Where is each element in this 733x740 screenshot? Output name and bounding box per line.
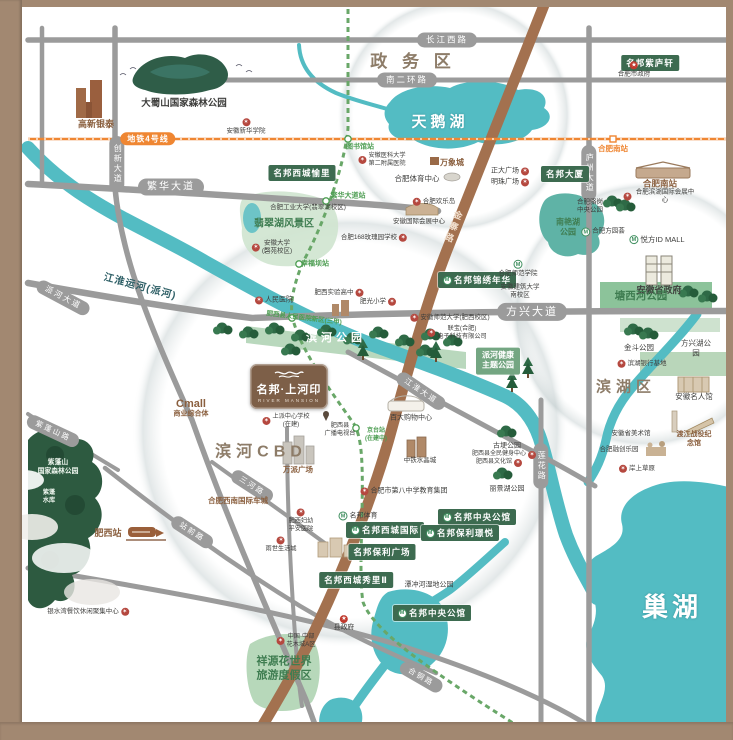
poi-feixi-tv-station: 肥西县 广播电视台 <box>325 422 356 438</box>
station-xingfuba: 幸福坝站 <box>301 259 329 268</box>
logo-waves-icon <box>274 370 304 379</box>
poi-yuefang-id-mall-text: 悦方ID MALL <box>640 235 684 245</box>
project-logo: 名邦·上河印 RIVER MANSION <box>250 364 328 409</box>
poi-marker-icon: ✶ <box>388 298 396 306</box>
poi-mingbang-sports: M名邦体育 <box>339 511 378 520</box>
park-binhe-label-text: 滨河公园 <box>306 331 366 345</box>
river-jianghuai-label-text: 江淮运河(派河) <box>102 271 177 303</box>
government-icon: ★ <box>340 615 348 623</box>
metro-station-icon: M <box>581 228 590 237</box>
poi-gaoxin-yintai: 高新银泰 <box>78 119 114 131</box>
poi-feixi-shiyan-school: 肥西实验高中✶ <box>315 289 364 297</box>
poi-dujiang-memorial: 渡江战役纪念馆 <box>675 430 714 448</box>
poi-huamucheng: ✶中国·中部 花木城A区 <box>277 633 316 649</box>
park-gugeng: 古埂公园 <box>493 441 521 450</box>
road-label-zhanqian-rd-text: 站前路 <box>177 520 206 544</box>
road-label-chuangxin-ave: 创新大道 <box>109 136 124 192</box>
park-xiangyuan-flower-world-text: 祥源花世界 旅游度假区 <box>257 655 312 684</box>
project-mingbang-zhongyang-gongguan-1: M名邦中央公馆 <box>438 509 516 525</box>
poi-shangpai-school: ✶上派中心学校 (在建) <box>262 413 309 429</box>
map-labels-layer: 长江西路南二环路繁华大道创新大道派河大道方兴大道庐州大道莲花路江淮大道站前路紫蓬… <box>0 0 733 740</box>
poi-marker-icon: ✶ <box>361 487 369 495</box>
park-binhe-label: 滨河公园 <box>306 331 366 345</box>
project-mingbang-zhongyang-gongguan-1-text: 名邦中央公馆 <box>454 511 511 522</box>
park-gugeng-text: 古埂公园 <box>493 441 521 450</box>
poi-marker-icon: ✶ <box>262 417 270 425</box>
station-hefeinan-metro-text: 合肥南站 <box>598 144 628 154</box>
park-zipengshan: 紫蓬山 国家森林公园 <box>38 459 79 477</box>
poi-intl-expo-center: 安徽国际会展中心 <box>393 218 445 226</box>
road-label-changjiang-west-rd-text: 长江西路 <box>426 34 468 45</box>
project-mingbang-zhiluxuan-text: 名邦紫庐轩 <box>626 57 674 68</box>
road-label-chuangxin-ave-text: 创新大道 <box>112 144 122 184</box>
poi-marker-icon: ✶ <box>252 244 260 252</box>
poi-huanledao: ✶合肥欢乐岛 <box>413 198 456 206</box>
road-label-jianghuai-ave: 江淮大道 <box>394 370 448 413</box>
poi-lianbao: ✶联宝(合肥) 电子科技有限公司 <box>427 325 487 341</box>
poi-marker-icon: ✶ <box>514 459 522 467</box>
poi-zhongtie-crystal-city: 中铁水晶城 <box>404 457 437 465</box>
project-mingbang-zhiluxuan: 名邦紫庐轩 <box>621 55 679 71</box>
poi-anhui-xinhua: ✶安徽新华学院 <box>227 118 266 135</box>
project-mingbang-dasha-text: 名邦大厦 <box>546 168 584 179</box>
map-frame-bottom <box>0 722 733 740</box>
poi-cmall-text: Cmall <box>176 397 206 411</box>
poi-no8-middle-school-text: 合肥市第八中学教育集团 <box>371 486 448 495</box>
road-label-luzhou-ave: 庐州大道 <box>581 145 596 201</box>
road-label-zipengshan-rd-text: 紫蓬山路 <box>34 419 73 444</box>
poi-rongchuang-park: 合肥融创乐园 <box>600 446 639 454</box>
poi-county-gov: ★县政府 <box>334 615 354 633</box>
poi-anhui-mingren-hall: 安徽名人馆 <box>675 392 713 402</box>
road-label-lianhua-rd: 莲花路 <box>533 443 548 489</box>
poi-feixi-culture-hall-text: 肥西县文化馆 <box>476 459 512 467</box>
poi-cmall-sub-text: 商业综合体 <box>174 409 209 418</box>
poi-fangyuanhui: M合肥方园荟 <box>581 228 625 237</box>
poi-marker-icon: ✶ <box>619 465 627 473</box>
poi-marker-icon: ✶ <box>413 198 421 206</box>
poi-feixi-railway-station: 肥西站 <box>94 528 121 540</box>
road-label-fanhua-ave: 繁华大道 <box>138 179 204 196</box>
poi-marker-icon: ✶ <box>399 234 407 242</box>
project-mingbang-xicheng-xiuli-text: 名邦西城秀里Ⅱ <box>324 574 388 585</box>
project-name-en: RIVER MANSION <box>258 398 320 403</box>
lake-chaohu-label-text: 巢湖 <box>642 591 702 625</box>
station-xingfuba-text: 幸福坝站 <box>301 259 329 268</box>
poi-wanxiangcheng: 万象城 <box>440 158 464 168</box>
project-mingbang-baoli-jingyue-text: 名邦保利璟悦 <box>437 527 494 538</box>
station-fanhua-ave-text: 繁华大道站 <box>331 191 366 200</box>
project-mingbang-xicheng-yuli: 名邦西城愉里 <box>268 165 335 181</box>
road-label-zipengshan-rd: 紫蓬山路 <box>25 413 82 449</box>
poi-southwest-auto-city-text: 合肥西南国际车城 <box>208 496 268 506</box>
poi-lianbao-text: 联宝(合肥) 电子科技有限公司 <box>437 325 487 341</box>
district-binhe-cbd-text: 滨河CBD <box>215 443 307 464</box>
location-map: 长江西路南二环路繁华大道创新大道派河大道方兴大道庐州大道莲花路江淮大道站前路紫蓬… <box>0 0 733 740</box>
poi-hfut-text: 合肥工业大学(翡翠湖校区) <box>270 204 346 212</box>
poi-anhui-normal-univ-text: 安徽师范大学(肥西校区) <box>420 314 489 322</box>
road-label-sanhe-rd-text: 三河路 <box>237 474 266 498</box>
poi-yushi-life-city: ✶雨世生活城 <box>266 536 297 553</box>
poi-shangpai-school-text: 上派中心学校 (在建) <box>272 413 309 429</box>
poi-168-school-text: 合肥168玫瑰园学校 <box>341 234 397 242</box>
district-binhu: 滨湖区 <box>596 377 656 397</box>
poi-dashushan-text: 大蜀山国家森林公园 <box>141 98 227 110</box>
poi-yushi-life-city-text: 雨世生活城 <box>266 545 297 553</box>
poi-hfut: 合肥工业大学(翡翠湖校区) <box>270 204 346 212</box>
poi-quanmin-fitness-center-text: 肥西县全民健身中心 <box>472 451 526 459</box>
project-mingbang-baoli-jingyue: M名邦保利璟悦 <box>421 525 499 541</box>
park-jindou-text: 金斗公园 <box>624 343 654 353</box>
poi-county-gov-text: 县政府 <box>334 624 354 633</box>
poi-cmall-sub: 商业综合体 <box>174 409 209 418</box>
park-paihe-health-text: 派河健康 主题公园 <box>482 351 514 372</box>
poi-anhui-art-museum-text: 安徽省美术馆 <box>612 430 651 438</box>
road-label-paihe-ave-text: 派河大道 <box>43 284 83 312</box>
park-fangxinghu: 方兴湖公园 <box>678 338 715 358</box>
park-zipengshan-text: 紫蓬山 国家森林公园 <box>38 459 79 477</box>
poi-marker-icon: ✶ <box>624 193 632 201</box>
metro-station-icon: M <box>629 236 638 245</box>
road-label-nanerhuan-rd-text: 南二环路 <box>386 74 428 85</box>
road-label-sanhe-rd: 三河路 <box>229 468 275 505</box>
poi-marker-icon: ✶ <box>521 167 529 175</box>
poi-feixi-shiyan-school-text: 肥西实验高中 <box>315 289 354 297</box>
project-mingbang-baoli-plaza: 名邦保利广场 <box>348 544 415 560</box>
poi-yuefang-id-mall: M悦方ID MALL <box>629 235 684 245</box>
poi-anhui-art-museum: 安徽省美术馆 <box>612 430 651 438</box>
poi-anyida-2nd-hospital-text: 安徽医科大学 第二附属医院 <box>368 152 405 168</box>
poi-quanmin-fitness-center: 肥西县全民健身中心✶ <box>472 451 536 459</box>
park-feicuihu-text: 翡翠湖风景区 <box>254 218 314 231</box>
water-zipeng-reservoir-text: 紫蓬 水库 <box>43 489 55 505</box>
metro-station-icon: M <box>398 608 407 617</box>
poi-gaoxin-yintai-text: 高新银泰 <box>78 119 114 131</box>
poi-marker-icon: ✶ <box>356 289 364 297</box>
poi-hefei-gov-text: 合肥市政府 <box>618 70 651 78</box>
poi-hefei-gov: ★合肥市政府 <box>618 61 651 78</box>
poi-southwest-auto-city: 合肥西南国际车城 <box>208 496 268 506</box>
poi-luogang-park-text: 合肥骆岗 中央公园 <box>577 199 603 216</box>
poi-marker-icon: ✶ <box>277 536 285 544</box>
project-mingbang-jinxiu-nianhua-text: 名邦锦绣年华 <box>454 274 511 285</box>
project-mingbang-xicheng-yuli-text: 名邦西城愉里 <box>273 167 330 178</box>
park-tanchonghe-wetland-text: 潭冲河湿地公园 <box>405 580 454 589</box>
project-mingbang-xicheng-xiuli: 名邦西城秀里Ⅱ <box>319 572 393 588</box>
poi-yinshuiwan-text: 银水湾餐饮休闲聚集中心 <box>47 608 119 616</box>
poi-wanpai-plaza: 万派广场 <box>283 465 313 475</box>
poi-anhui-mingren-hall-text: 安徽名人馆 <box>675 392 713 402</box>
metro-station-icon: M <box>351 525 360 534</box>
poi-hefei-normal-text: 合肥师范学院 <box>499 270 538 278</box>
park-nanyanhu-text: 南艳湖 公园 <box>556 218 580 239</box>
district-zhengwu: 政 务 区 <box>370 51 455 73</box>
metro-station-icon: M <box>443 512 452 521</box>
government-icon: ★ <box>630 61 638 69</box>
poi-anhui-jianzhu: 安徽建筑大学 南校区 <box>501 284 540 301</box>
lake-tianehu-label: 天鹅湖 <box>411 112 468 132</box>
poi-zhengda-plaza-text: 正大广场 <box>491 166 519 175</box>
road-label-luzhou-ave-text: 庐州大道 <box>584 153 594 193</box>
road-label-lianhua-rd-text: 莲花路 <box>536 451 546 481</box>
park-tangxihe-text: 塘西河公园 <box>615 290 668 304</box>
metro-station-icon: M <box>443 275 452 284</box>
poi-anhui-gov: 安徽省政府 <box>636 285 681 297</box>
poi-luogang-park: 合肥骆岗 中央公园 <box>577 199 603 216</box>
poi-zhengda-plaza: 正大广场✶ <box>491 166 529 175</box>
poi-feixi-culture-hall: 肥西县文化馆✶ <box>476 459 522 467</box>
poi-marker-icon: ✶ <box>618 360 626 368</box>
poi-feixi-fuyou-hospital: ✶肥西妇幼 平安医院 <box>289 508 314 533</box>
metro-station-icon: M <box>426 528 435 537</box>
poi-feiguang-primary: 肥光小学✶ <box>360 298 396 306</box>
poi-hefei-normal: M合肥师范学院 <box>499 260 538 278</box>
poi-huanledao-text: 合肥欢乐岛 <box>423 198 456 206</box>
station-feixi-hospital-text: 肥西县人民医院新区(三甲) <box>266 310 342 328</box>
poi-marker-icon: ✶ <box>297 508 305 516</box>
park-paihe-health: 派河健康 主题公园 <box>476 348 520 375</box>
poi-yinshuiwan: 银水湾餐饮休闲聚集中心✶ <box>47 608 129 616</box>
station-jingtai: 京台站 (在建中) <box>365 428 387 444</box>
poi-binhu-bank-base: ✶滨湖银行基地 <box>618 360 667 368</box>
poi-binhu-bank-base-text: 滨湖银行基地 <box>628 360 667 368</box>
poi-hefei-sports-center: 合肥体育中心 <box>395 174 440 184</box>
park-fangxinghu-text: 方兴湖公园 <box>678 338 715 358</box>
metro-station-icon: M <box>339 512 348 521</box>
district-binhu-text: 滨湖区 <box>596 377 656 397</box>
poi-no8-middle-school: ✶合肥市第八中学教育集团 <box>361 486 448 495</box>
poi-mingzhu-plaza: 明珠广场✶ <box>491 177 529 186</box>
station-hefeinan-metro: 合肥南站 <box>598 144 628 154</box>
poi-anhui-univ: ✶安徽大学 (磬苑校区) <box>252 240 292 257</box>
poi-baida-shopping-text: 百大购物中心 <box>390 413 432 422</box>
map-frame-right <box>726 0 733 740</box>
poi-marker-icon: ✶ <box>255 296 263 304</box>
park-nanyanhu: 南艳湖 公园 <box>556 218 580 239</box>
poi-anyida-2nd-hospital: ✶安徽医科大学 第二附属医院 <box>358 152 405 168</box>
poi-marker-icon: ✶ <box>242 118 250 126</box>
road-label-jianghuai-ave-text: 江淮大道 <box>403 376 440 405</box>
district-binhe-cbd: 滨河CBD <box>215 443 307 464</box>
poi-renmin-hospital: ✶人民医院 <box>255 295 293 304</box>
road-label-zhanqian-rd: 站前路 <box>169 514 215 551</box>
road-label-fangxing-ave-text: 方兴大道 <box>506 305 558 319</box>
poi-cmall: Cmall <box>176 397 206 411</box>
project-mingbang-baoli-plaza-text: 名邦保利广场 <box>353 546 410 557</box>
road-label-fanhua-ave-text: 繁华大道 <box>147 181 195 194</box>
lake-tianehu-label-text: 天鹅湖 <box>411 112 468 132</box>
park-lijinghu: 丽景湖公园 <box>490 484 525 493</box>
poi-dujiang-memorial-text: 渡江战役纪念馆 <box>675 430 714 448</box>
poi-renmin-hospital-text: 人民医院 <box>265 295 293 304</box>
water-zipeng-reservoir: 紫蓬 水库 <box>43 489 55 505</box>
poi-hefei-sports-center-text: 合肥体育中心 <box>395 174 440 184</box>
park-lijinghu-text: 丽景湖公园 <box>490 484 525 493</box>
station-jingtai-text: 京台站 (在建中) <box>365 428 387 444</box>
park-tangxihe: 塘西河公园 <box>615 290 668 304</box>
district-zhengwu-text: 政 务 区 <box>370 51 455 73</box>
project-mingbang-zhongyang-gongguan-2: M名邦中央公馆 <box>393 605 471 621</box>
poi-anshang-grassland-text: 岸上草原 <box>629 465 655 473</box>
road-label-nanerhuan-rd: 南二环路 <box>377 72 437 87</box>
road-label-paihe-ave: 派河大道 <box>34 278 92 318</box>
poi-wanxiangcheng-text: 万象城 <box>440 158 464 168</box>
poi-anhui-univ-text: 安徽大学 (磬苑校区) <box>262 240 292 257</box>
poi-marker-icon: ✶ <box>410 314 418 322</box>
poi-binhu-expo: ✶合肥滨湖国际会展中心 <box>624 189 697 206</box>
poi-fangyuanhui-text: 合肥方园荟 <box>592 228 625 236</box>
poi-binhu-expo-text: 合肥滨湖国际会展中心 <box>634 189 697 206</box>
poi-feixi-fuyou-hospital-text: 肥西妇幼 平安医院 <box>289 517 314 533</box>
park-xiangyuan-flower-world: 祥源花世界 旅游度假区 <box>257 655 312 684</box>
poi-hefeinan-railway: 合肥南站 <box>643 178 677 189</box>
poi-intl-expo-center-text: 安徽国际会展中心 <box>393 218 445 226</box>
poi-huamucheng-text: 中国·中部 花木城A区 <box>287 633 316 649</box>
station-fanhua-ave: 繁华大道站 <box>331 191 366 200</box>
poi-zhongtie-crystal-city-text: 中铁水晶城 <box>404 457 437 465</box>
project-mingbang-xicheng-guoji-text: 名邦西城国际 <box>362 524 419 535</box>
poi-marker-icon: ✶ <box>521 178 529 186</box>
poi-anshang-grassland: ✶岸上草原 <box>619 465 655 473</box>
poi-baida-shopping: 百大购物中心 <box>390 413 432 422</box>
map-frame-left <box>0 0 22 740</box>
poi-anhui-jianzhu-text: 安徽建筑大学 南校区 <box>501 284 540 301</box>
poi-marker-icon: ✶ <box>427 329 435 337</box>
metro-line4-badge-text: 地铁4号线 <box>127 134 168 144</box>
metro-station-icon: M <box>514 260 523 269</box>
project-name: 名邦·上河印 <box>257 381 322 397</box>
road-label-hetong-rd: 合铜路 <box>397 659 444 694</box>
poi-mingbang-sports-text: 名邦体育 <box>350 511 378 520</box>
station-tushuguan: 图书馆站 <box>346 142 374 151</box>
project-mingbang-zhongyang-gongguan-2-text: 名邦中央公馆 <box>409 607 466 618</box>
road-label-jinzhai-rd-text: 金寨路 <box>440 208 464 246</box>
road-label-changjiang-west-rd: 长江西路 <box>417 32 477 47</box>
poi-wanpai-plaza-text: 万派广场 <box>283 465 313 475</box>
poi-rongchuang-park-text: 合肥融创乐园 <box>600 446 639 454</box>
project-mingbang-xicheng-guoji: M名邦西城国际 <box>346 522 424 538</box>
poi-dashushan: 大蜀山国家森林公园 <box>141 98 227 110</box>
station-feixi-hospital: 肥西县人民医院新区(三甲) <box>266 310 342 328</box>
park-feicuihu: 翡翠湖风景区 <box>254 218 314 231</box>
poi-anhui-gov-text: 安徽省政府 <box>636 285 681 297</box>
station-tushuguan-text: 图书馆站 <box>346 142 374 151</box>
poi-marker-icon: ✶ <box>277 637 285 645</box>
poi-anhui-normal-univ: ✶安徽师范大学(肥西校区) <box>410 314 489 322</box>
project-mingbang-jinxiu-nianhua: M名邦锦绣年华 <box>438 272 516 288</box>
poi-feixi-railway-station-text: 肥西站 <box>94 528 121 540</box>
road-label-hetong-rd-text: 合铜路 <box>406 666 436 689</box>
poi-marker-icon: ✶ <box>358 156 366 164</box>
poi-feiguang-primary-text: 肥光小学 <box>360 298 386 306</box>
metro-line4-badge: 地铁4号线 <box>120 132 175 145</box>
river-jianghuai-label: 江淮运河(派河) <box>102 271 177 303</box>
poi-168-school: 合肥168玫瑰园学校✶ <box>341 234 407 242</box>
park-jindou: 金斗公园 <box>624 343 654 353</box>
poi-marker-icon: ✶ <box>121 608 129 616</box>
road-label-jinzhai-rd: 金寨路 <box>440 208 464 246</box>
poi-hefeinan-railway-text: 合肥南站 <box>643 178 677 189</box>
project-mingbang-dasha: 名邦大厦 <box>541 166 589 182</box>
poi-marker-icon: ✶ <box>528 451 536 459</box>
lake-chaohu-label: 巢湖 <box>642 591 702 625</box>
park-tanchonghe-wetland: 潭冲河湿地公园 <box>405 580 454 589</box>
poi-feixi-tv-station-text: 肥西县 广播电视台 <box>325 422 356 438</box>
map-frame-top <box>0 0 733 7</box>
poi-anhui-xinhua-text: 安徽新华学院 <box>227 127 266 135</box>
road-label-fangxing-ave: 方兴大道 <box>497 303 567 321</box>
poi-mingzhu-plaza-text: 明珠广场 <box>491 177 519 186</box>
